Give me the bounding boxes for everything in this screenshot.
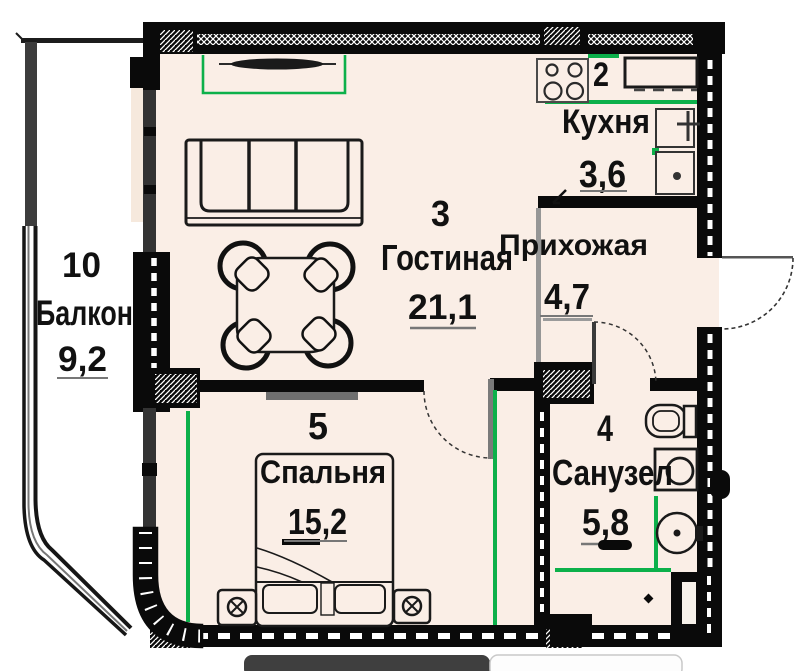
svg-text:4: 4 [597,408,613,449]
svg-text:5,8: 5,8 [582,502,629,543]
svg-text:3: 3 [431,193,450,234]
svg-text:2: 2 [593,56,609,94]
svg-text:Санузел: Санузел [552,452,673,493]
svg-text:5: 5 [308,406,328,448]
svg-text:Прихожая: Прихожая [499,229,648,262]
svg-text:10: 10 [62,246,101,285]
svg-text:4,7: 4,7 [544,276,590,317]
svg-text:Балкон: Балкон [36,294,133,333]
svg-text:9,2: 9,2 [58,340,107,379]
svg-text:Гостиная: Гостиная [381,237,513,278]
svg-text:Спальня: Спальня [260,454,386,490]
svg-text:Кухня: Кухня [562,103,650,141]
svg-text:3,6: 3,6 [579,154,626,196]
svg-text:21,1: 21,1 [408,288,477,327]
svg-text:15,2: 15,2 [288,501,347,542]
